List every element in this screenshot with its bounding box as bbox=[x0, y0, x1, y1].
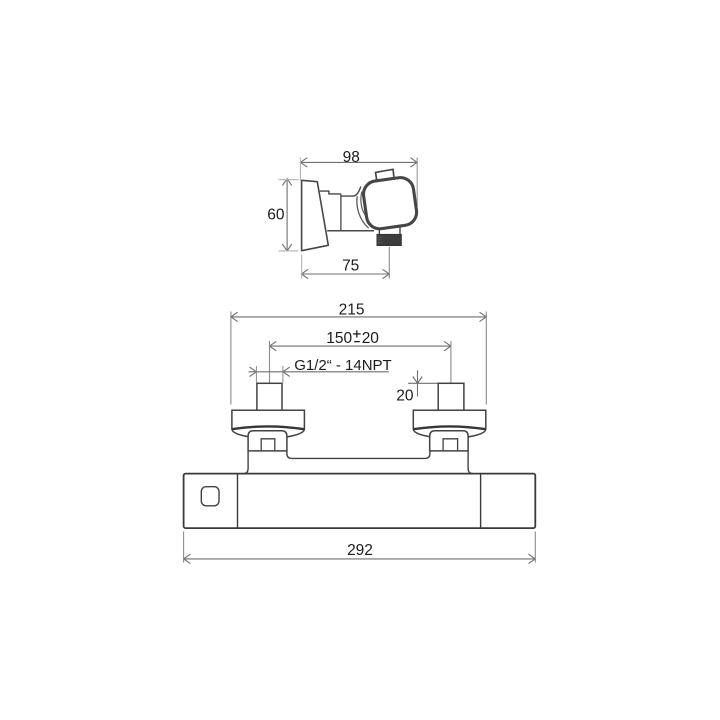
svg-text:G1/2“ - 14NPT: G1/2“ - 14NPT bbox=[294, 357, 392, 374]
svg-text:20: 20 bbox=[396, 388, 414, 405]
svg-text:98: 98 bbox=[343, 149, 360, 166]
svg-text:292: 292 bbox=[347, 542, 373, 559]
svg-text:215: 215 bbox=[339, 301, 365, 318]
svg-text:75: 75 bbox=[342, 257, 359, 274]
svg-text:150: 150 bbox=[326, 330, 352, 347]
svg-text:60: 60 bbox=[267, 206, 285, 223]
svg-text:20: 20 bbox=[362, 330, 380, 347]
